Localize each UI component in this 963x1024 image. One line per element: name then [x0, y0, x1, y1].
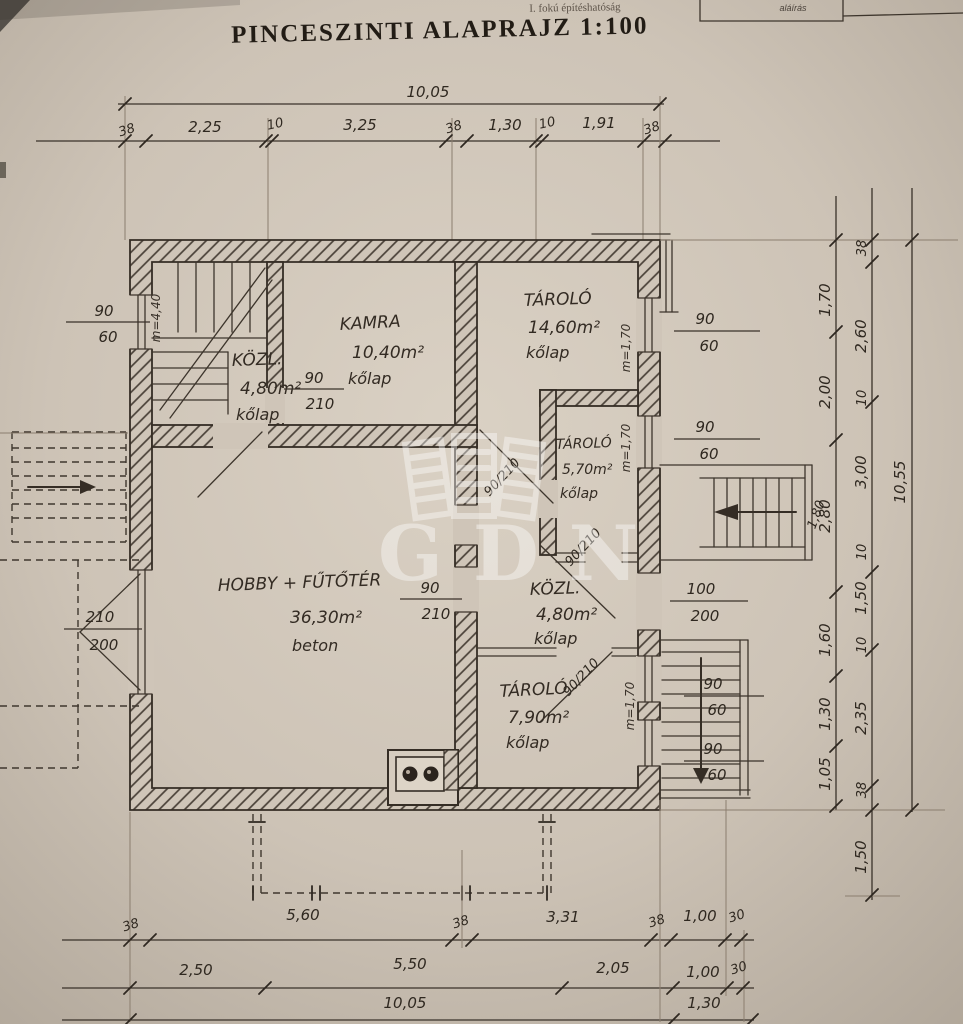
dim-right-inner-5: 1,05 — [816, 757, 834, 790]
watermark-text: GDN — [378, 509, 668, 598]
door-hobby-h: 210 — [422, 605, 451, 623]
dim-right-total: 10,55 — [891, 461, 909, 504]
dim-right-mid-5: 1,50 — [852, 581, 870, 614]
dim-right-mid-8: 38 — [855, 782, 870, 799]
parapet-note-1: m=1,70 — [619, 323, 633, 372]
win-right-top-w: 90 — [695, 310, 714, 328]
dim-top-1: 2,25 — [188, 118, 221, 136]
win-left-top-h: 60 — [98, 328, 117, 346]
room-tarolo3-area: 7,90m² — [508, 708, 569, 728]
door-kamra-w: 90 — [304, 369, 323, 387]
door-right-h: 200 — [691, 607, 720, 625]
dim-right-mid-0: 38 — [855, 240, 870, 257]
parapet-note-3: m=1,70 — [623, 681, 637, 730]
win-right-top-h: 60 — [699, 337, 718, 355]
basement-floor-plan-drawing: I. fokú építéshatóság aláírás PINCESZINT… — [0, 0, 963, 1024]
dim-right-mid-3: 3,00 — [852, 455, 870, 488]
door-right-w: 100 — [687, 580, 716, 598]
dim-right-inner-2: 2,80 — [816, 499, 834, 532]
room-tarolo2-floor: kőlap — [560, 486, 598, 502]
room-kamra-name: KAMRA — [339, 312, 401, 335]
dim-right-inner-4: 1,30 — [816, 697, 834, 730]
door-kamra-h: 210 — [306, 395, 335, 413]
dim-bot1-3: 3,31 — [546, 908, 579, 926]
win-right-low2-w: 90 — [703, 740, 722, 758]
parapet-note-2: m=1,70 — [619, 423, 633, 472]
dim-right-mid-2: 10 — [855, 390, 870, 407]
dim-right-mid-6: 10 — [855, 637, 870, 654]
room-hobby-area: 36,30m² — [290, 608, 362, 628]
dim-top-7: 1,91 — [582, 114, 615, 132]
signature-label: aláírás — [779, 3, 807, 13]
scanned-floor-plan-sheet: I. fokú építéshatóság aláírás PINCESZINT… — [0, 0, 963, 1024]
room-tarolo1-floor: kőlap — [526, 343, 569, 362]
room-kamra-area: 10,40m² — [352, 343, 424, 363]
dim-bot3-1: 1,30 — [687, 994, 720, 1012]
dim-bot3-0: 10,05 — [384, 994, 427, 1012]
room-kozl1-name: KÖZL. — [231, 347, 282, 371]
dim-top-3: 3,25 — [343, 116, 376, 134]
win-right-low2-h: 60 — [707, 766, 726, 784]
room-tarolo2-area: 5,70m² — [562, 462, 613, 478]
room-hobby-floor: beton — [292, 636, 338, 655]
dim-bot1-1: 5,60 — [286, 906, 319, 924]
room-kozl2-area: 4,80m² — [536, 605, 597, 625]
win-right-mid-h: 60 — [699, 445, 718, 463]
win-right-low1-w: 90 — [703, 675, 722, 693]
dim-right-mid-4: 10 — [855, 544, 870, 561]
scan-edge-mark — [0, 162, 6, 178]
dim-bot2-3: 1,00 — [686, 963, 719, 981]
win-right-low1-h: 60 — [707, 701, 726, 719]
room-tarolo3-floor: kőlap — [506, 733, 549, 752]
win-left-big-w: 210 — [86, 608, 115, 626]
room-kozl1-floor: kőlap — [236, 405, 279, 424]
room-tarolo1-name: TÁROLÓ — [523, 287, 592, 311]
room-kamra-floor: kőlap — [348, 369, 391, 388]
dim-right-inner-3: 1,60 — [816, 623, 834, 656]
room-kozl2-floor: kőlap — [534, 629, 577, 648]
win-left-top-w: 90 — [94, 302, 113, 320]
dim-bot2-2: 2,05 — [596, 959, 629, 977]
dim-right-mid-1: 2,60 — [852, 319, 870, 352]
dim-bot1-5: 1,00 — [683, 907, 716, 925]
room-tarolo1-area: 14,60m² — [528, 318, 600, 338]
dim-bot2-1: 5,50 — [393, 955, 426, 973]
stair-note: m=4,40 — [149, 293, 163, 342]
dim-top-total: 10,05 — [407, 83, 450, 101]
chimney — [388, 750, 458, 805]
dim-bot2-0: 2,50 — [179, 961, 212, 979]
dim-right-inner-0: 1,70 — [816, 283, 834, 316]
dim-right-inner-1: 2,00 — [816, 375, 834, 408]
dim-top-5: 1,30 — [488, 116, 521, 134]
win-right-mid-w: 90 — [695, 418, 714, 436]
win-left-big-h: 200 — [90, 636, 119, 654]
room-tarolo2-name: TÁROLÓ — [556, 433, 613, 453]
dim-right-mid-9: 1,50 — [852, 840, 870, 873]
dim-right-mid-7: 2,35 — [852, 701, 870, 734]
